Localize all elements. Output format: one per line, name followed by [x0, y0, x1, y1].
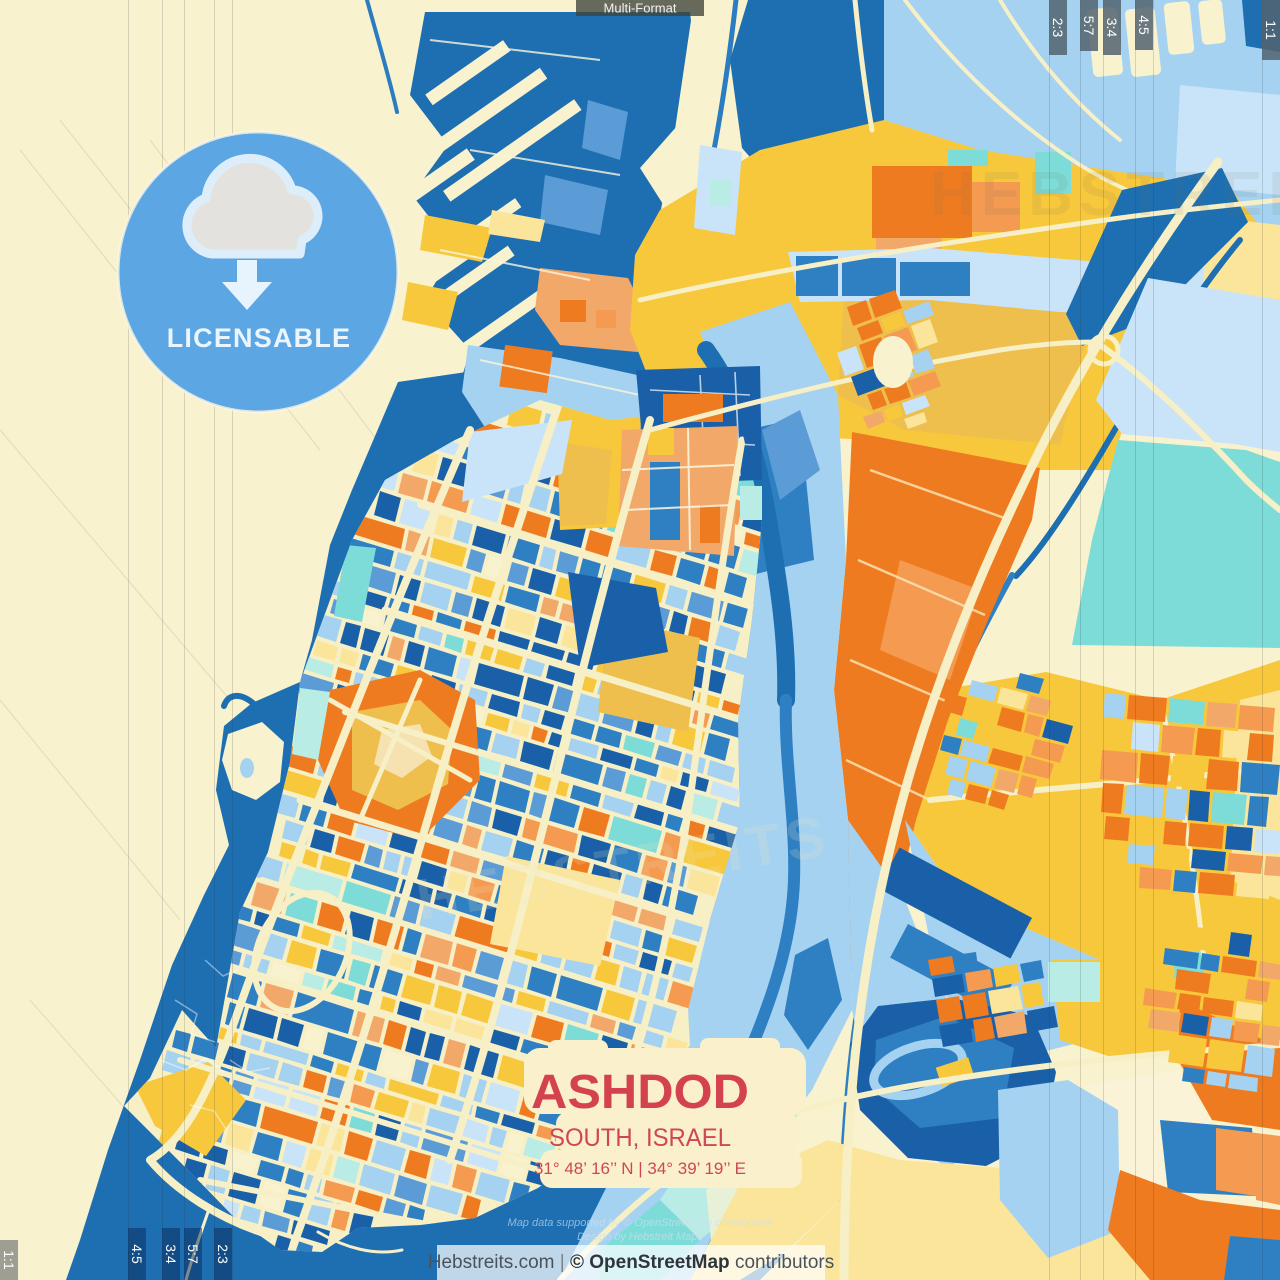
- svg-text:Map data supported by © OpenSt: Map data supported by © OpenStreetMap co…: [508, 1217, 773, 1229]
- svg-text:3:4: 3:4: [1104, 18, 1120, 38]
- svg-text:4:5: 4:5: [1136, 15, 1152, 35]
- svg-text:Multi-Format: Multi-Format: [604, 1, 677, 16]
- svg-text:Design by Hebstreit Maps: Design by Hebstreit Maps: [577, 1231, 703, 1243]
- svg-text:31° 48’ 16’’ N | 34° 39’: 31° 48’ 16’’ N | 34° 39’ 19’’ E: [534, 1160, 746, 1178]
- svg-text:2:3: 2:3: [215, 1244, 231, 1264]
- svg-text:4:5: 4:5: [129, 1244, 145, 1264]
- svg-text:SOUTH, ISRAEL: SOUTH, ISRAEL: [549, 1124, 731, 1152]
- svg-text:1:1: 1:1: [1263, 20, 1279, 40]
- svg-text:5:7: 5:7: [1081, 16, 1097, 36]
- svg-text:Hebstreits.com | © OpenStreetM: Hebstreits.com | © OpenStreetMap contrib…: [428, 1252, 834, 1273]
- svg-text:LICENSABLE: LICENSABLE: [167, 323, 352, 353]
- svg-text:5:7: 5:7: [185, 1244, 201, 1264]
- svg-text:1:1: 1:1: [1, 1250, 17, 1270]
- svg-text:ASHDOD: ASHDOD: [531, 1066, 749, 1119]
- svg-text:2:3: 2:3: [1050, 18, 1066, 38]
- svg-text:HEBSTREITS: HEBSTREITS: [930, 160, 1280, 229]
- svg-text:3:4: 3:4: [163, 1244, 179, 1264]
